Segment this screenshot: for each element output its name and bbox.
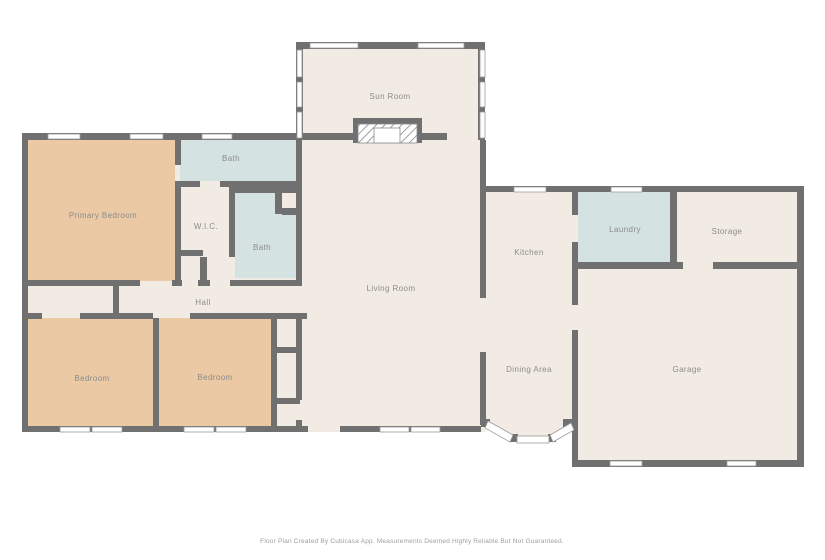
window xyxy=(297,50,302,77)
window xyxy=(216,427,246,432)
wall-segment xyxy=(572,192,578,215)
room-label-laundry: Laundry xyxy=(609,225,641,234)
wall-segment xyxy=(340,426,481,432)
wall-segment xyxy=(172,280,182,286)
room-label-bath-top: Bath xyxy=(222,154,240,163)
wall-segment xyxy=(296,313,302,400)
wall-segment xyxy=(275,187,282,214)
wall-segment xyxy=(80,313,153,319)
room-label-living-room: Living Room xyxy=(367,284,416,293)
window xyxy=(411,427,440,432)
window xyxy=(480,50,485,77)
room-label-bath-inner: Bath xyxy=(253,243,271,252)
window xyxy=(727,461,756,466)
room-label-kitchen: Kitchen xyxy=(514,248,543,257)
wall-segment xyxy=(220,181,302,187)
room-label-primary-bedroom: Primary Bedroom xyxy=(69,211,137,220)
wall-segment xyxy=(797,192,804,467)
wall-segment xyxy=(153,318,159,426)
window xyxy=(514,187,546,192)
window xyxy=(130,134,163,139)
wall-segment xyxy=(296,133,302,286)
floor-kitchen-dining xyxy=(480,186,578,421)
wall-segment xyxy=(175,181,200,187)
room-label-sun-room: Sun Room xyxy=(370,92,411,101)
window xyxy=(310,43,358,48)
window xyxy=(202,134,232,139)
room-label-wic: W.I.C. xyxy=(194,222,218,231)
window xyxy=(297,82,302,107)
floor-plan-drawing: Sun Room Bath Primary Bedroom W.I.C. Bat… xyxy=(0,0,825,560)
wall-segment xyxy=(296,420,302,432)
wall-segment xyxy=(282,208,298,215)
wall-segment xyxy=(198,280,210,286)
room-label-dining: Dining Area xyxy=(506,365,552,374)
wall-segment xyxy=(113,286,119,313)
window xyxy=(297,112,302,138)
wall-segment xyxy=(480,140,486,298)
window xyxy=(611,187,642,192)
wall-segment xyxy=(175,183,181,281)
window xyxy=(380,427,409,432)
room-primary-bedroom xyxy=(28,139,175,281)
wall-segment xyxy=(572,460,804,467)
wall-segment xyxy=(271,318,277,426)
wall-segment xyxy=(713,262,797,269)
wall-segment xyxy=(22,280,140,286)
wall-segment xyxy=(22,313,42,319)
fireplace-firebox xyxy=(374,128,400,143)
room-label-bedroom-right: Bedroom xyxy=(197,373,232,382)
window xyxy=(480,82,485,107)
window xyxy=(418,43,464,48)
window xyxy=(48,134,80,139)
room-label-garage: Garage xyxy=(672,365,701,374)
window xyxy=(480,112,485,138)
room-bedroom-right xyxy=(159,318,271,426)
bay-window-center xyxy=(517,436,549,443)
wall-segment xyxy=(229,187,302,193)
wall-segment xyxy=(175,139,181,165)
window xyxy=(184,427,214,432)
window xyxy=(610,461,642,466)
room-label-hall: Hall xyxy=(195,298,210,307)
fireplace xyxy=(353,118,422,143)
room-label-storage: Storage xyxy=(712,227,743,236)
wall-segment xyxy=(230,280,296,286)
wall-segment xyxy=(296,133,358,140)
wall-segment xyxy=(572,262,683,269)
window xyxy=(60,427,90,432)
wall-segment xyxy=(572,269,578,305)
wall-segment xyxy=(175,250,203,256)
floor-plan-page: Sun Room Bath Primary Bedroom W.I.C. Bat… xyxy=(0,0,825,560)
wall-segment xyxy=(229,193,235,257)
wall-segment xyxy=(190,313,307,319)
wall-segment xyxy=(670,192,677,262)
wall-segment xyxy=(480,352,486,425)
room-label-bedroom-left: Bedroom xyxy=(74,374,109,383)
room-bedroom-left xyxy=(28,318,153,426)
window xyxy=(92,427,122,432)
footer-disclaimer: Floor Plan Created By Cubicasa App. Meas… xyxy=(260,538,564,545)
wall-segment xyxy=(572,330,578,467)
wall-segment xyxy=(572,242,578,262)
wall-segment xyxy=(200,257,207,280)
